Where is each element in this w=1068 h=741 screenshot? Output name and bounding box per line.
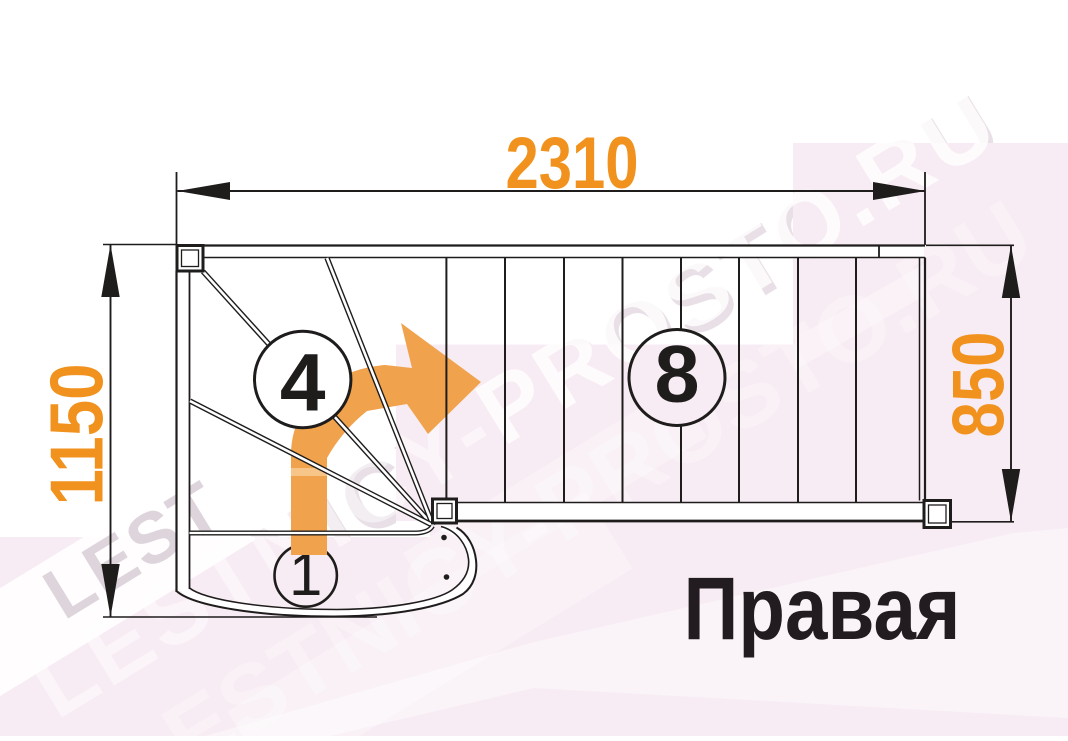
svg-text:Правая: Правая [684,558,961,658]
svg-text:4: 4 [280,338,326,429]
svg-text:2310: 2310 [506,123,639,204]
svg-text:1150: 1150 [35,364,119,506]
svg-text:8: 8 [654,330,699,420]
svg-text:850: 850 [939,332,1020,438]
